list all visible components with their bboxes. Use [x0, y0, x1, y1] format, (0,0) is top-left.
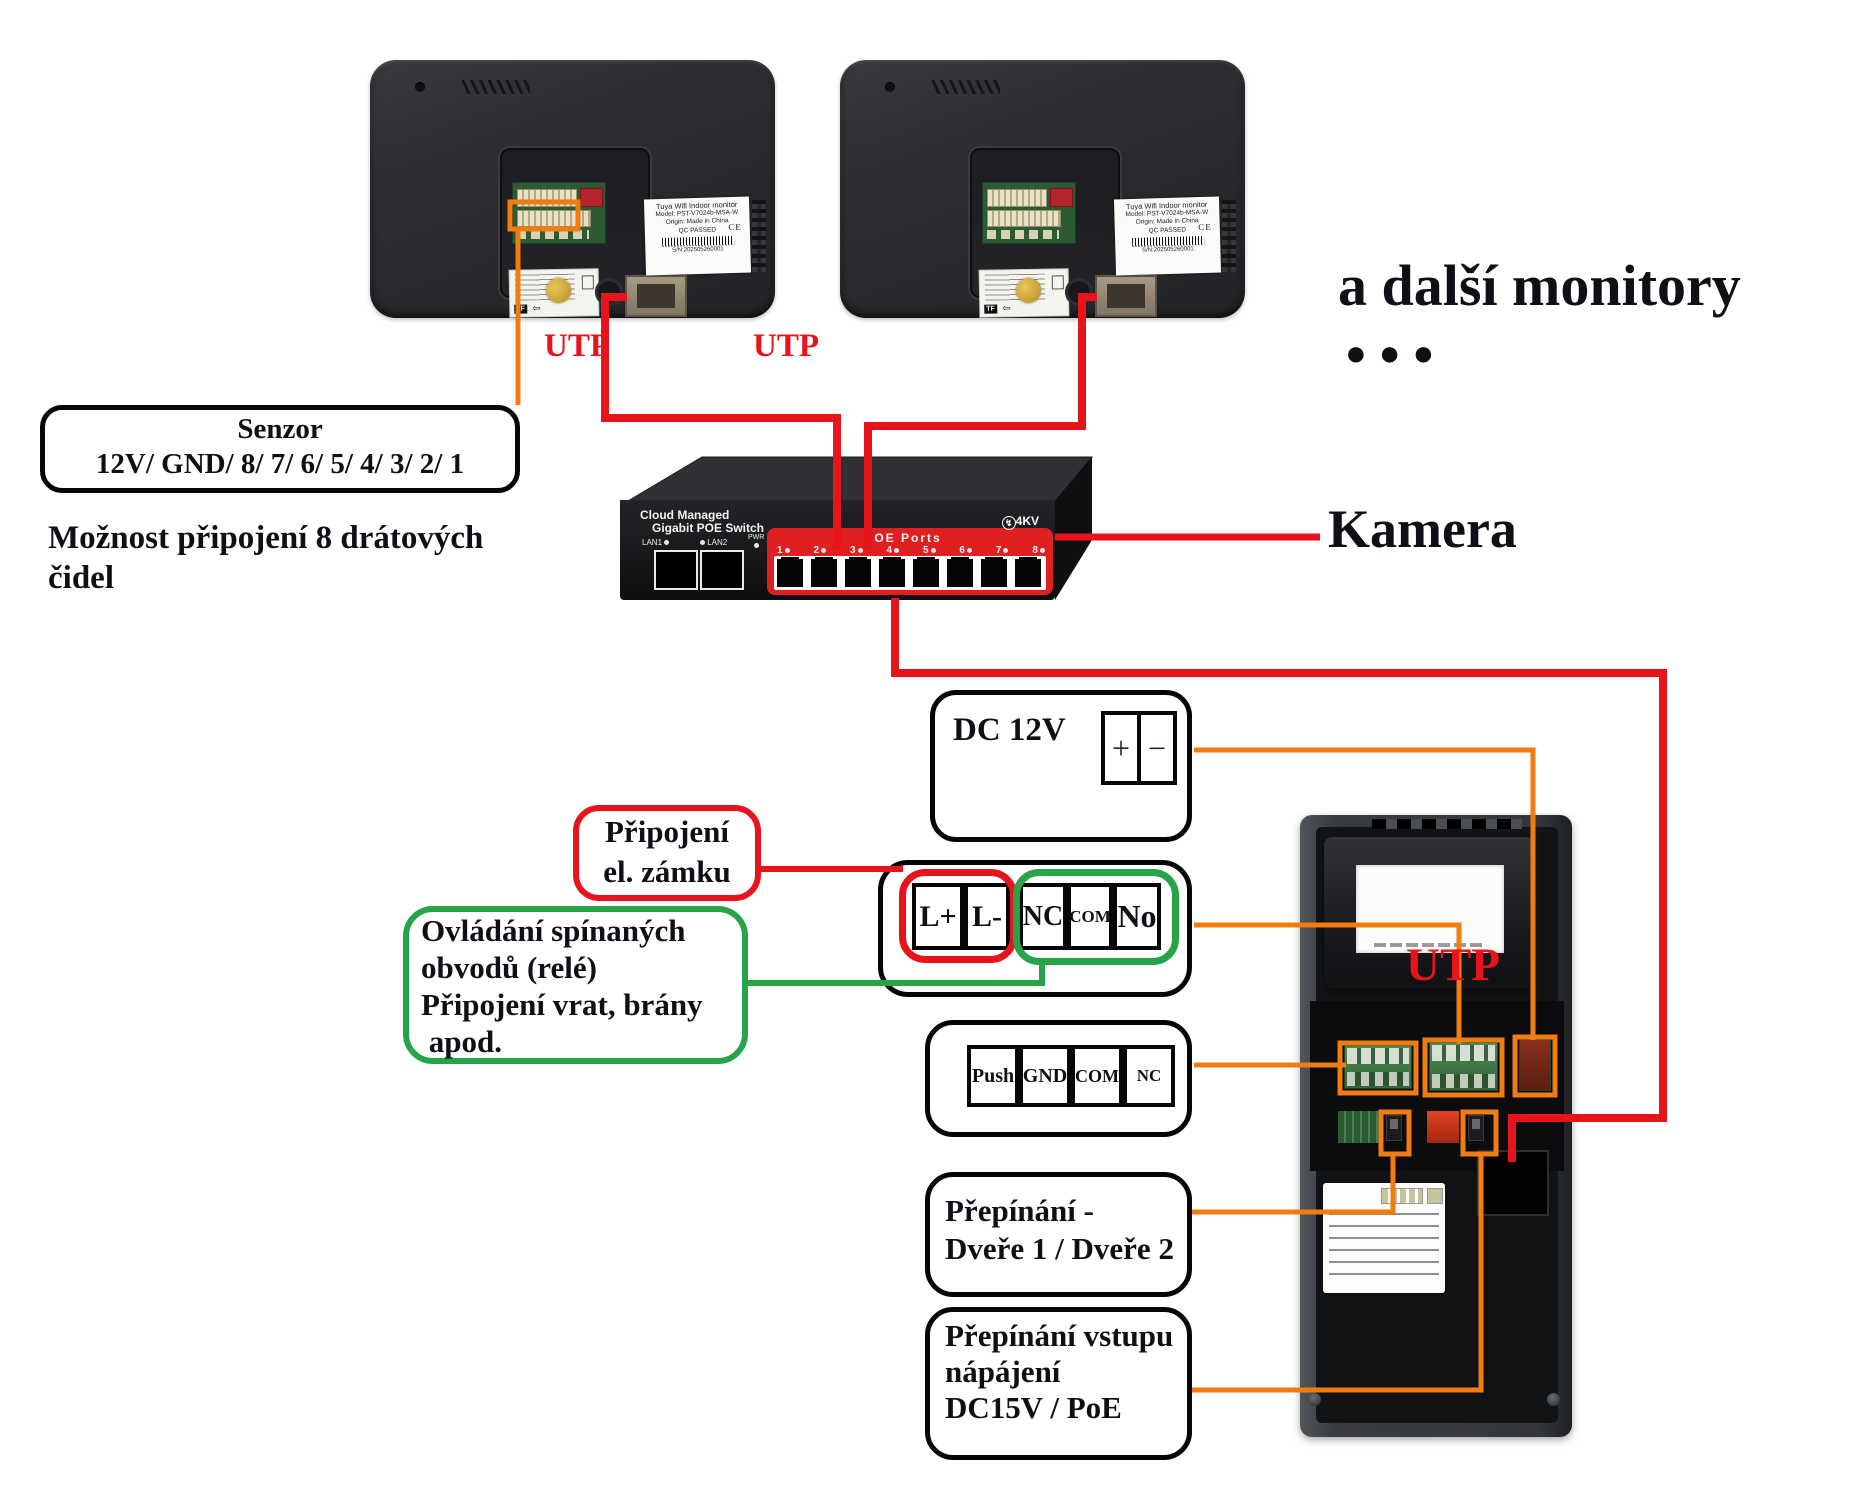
dc-power-connector: [1519, 1039, 1551, 1091]
relay-callout-line1: Ovládání spínaných: [421, 912, 685, 949]
dc12v-terminal-box: + −: [1101, 711, 1177, 785]
vent-holes: [752, 200, 766, 272]
lan1-port: [656, 552, 696, 588]
dc-plus-terminal: +: [1105, 715, 1141, 781]
wire-connector: [517, 189, 577, 207]
small-pcb: [1338, 1111, 1382, 1143]
poe-port-strip: [774, 556, 1046, 590]
label-serial: S/N:202505260001: [1115, 245, 1220, 256]
label-qc: QC PASSEDCE: [1115, 225, 1220, 237]
device-label: Tuya Wifi Indoor monitor Model: PST-V702…: [644, 197, 751, 276]
speaker-icon: [595, 278, 623, 306]
lock-callout-line1: Připojení: [573, 812, 761, 852]
io-terminal-block: [1429, 1042, 1498, 1091]
indoor-monitor-1: TF ⇦ Tuya Wifi Indoor monitor Model: PST…: [370, 60, 775, 318]
indoor-monitor-2: TF ⇦ Tuya Wifi Indoor monitor Model: PST…: [840, 60, 1245, 318]
switch-top-face: [628, 457, 1092, 501]
rj45-port: [777, 559, 803, 587]
dc12v-callout: DC 12V + −: [930, 690, 1192, 842]
arrow-icon: ⇦: [1002, 304, 1011, 314]
lan1-label: LAN1: [642, 538, 669, 547]
speaker-icon: [1065, 278, 1093, 306]
power-select-switch: [1468, 1115, 1484, 1141]
rj45-port: [625, 275, 687, 317]
sensor-connector: [517, 210, 591, 227]
tf-slot-label: TF: [984, 304, 997, 313]
dip-drawing: [1052, 275, 1064, 289]
lan2-led: [700, 540, 705, 545]
screw-icon: [885, 82, 895, 92]
vent-slots: [462, 80, 530, 94]
rj45-port: [1095, 275, 1157, 317]
device-label: Tuya Wifi Indoor monitor Model: PST-V702…: [1114, 197, 1221, 276]
tf-slot-label: TF: [514, 304, 527, 313]
power-switch-line3: DC15V / PoE: [945, 1390, 1122, 1426]
lan2-label: LAN2: [700, 538, 727, 547]
lightning-icon: ↯: [1002, 516, 1016, 530]
relay-terminals-ring: [1013, 869, 1179, 965]
arrow-icon: ⇦: [532, 304, 541, 314]
ce-mark: CE: [728, 223, 742, 232]
screw-icon: [1308, 1393, 1321, 1406]
lan2-port: [702, 552, 742, 588]
utp-label-1: UTP: [544, 328, 610, 365]
door-switch-line1: Přepínání -: [945, 1192, 1094, 1230]
utp-port-opening: [1477, 1150, 1549, 1216]
ce-mark: CE: [1198, 223, 1212, 232]
rj45-port: [913, 559, 939, 587]
terminal-cell-nc2: NC: [1123, 1045, 1175, 1107]
power-switch-line1: Přepínání vstupu: [945, 1318, 1173, 1354]
dip-drawing: [582, 275, 594, 289]
jumper-pins: [987, 230, 1059, 239]
relay-terminal-block: [1344, 1045, 1412, 1089]
label-serial: S/N:202505260001: [645, 245, 750, 256]
switch-side-face: [1055, 457, 1092, 600]
qc-round-sticker: [1016, 278, 1041, 303]
door-station: [1300, 815, 1572, 1437]
port-number: 8: [1032, 545, 1045, 556]
switch-brand-line2: Gigabit POE Switch: [652, 521, 764, 535]
sensor-callout-pins: 12V/ GND/ 8/ 7/ 6/ 5/ 4/ 3/ 2/ 1: [40, 447, 520, 481]
sensor-connector: [987, 210, 1061, 227]
terminal-cell-gnd: GND: [1019, 1045, 1071, 1107]
rj45-port: [947, 559, 973, 587]
door-switch-line2: Dveře 1 / Dveře 2: [945, 1230, 1174, 1268]
rj45-port: [879, 559, 905, 587]
poe-switch: Cloud Managed Gigabit POE Switch LAN1 LA…: [620, 500, 1055, 600]
relay-callout-line4: apod.: [421, 1023, 502, 1060]
rj45-port: [845, 559, 871, 587]
wire-connector: [987, 189, 1047, 207]
rj45-port: [811, 559, 837, 587]
vent-slots: [932, 80, 1000, 94]
port-number: 7: [996, 545, 1009, 556]
more-monitors-text: a další monitory: [1338, 252, 1741, 319]
station-vents: [1372, 819, 1522, 829]
red-connector: [580, 188, 603, 207]
lock-callout-line2: el. zámku: [573, 852, 761, 892]
red-jumper-block: [1427, 1111, 1459, 1143]
sensor-note-line2: čidel: [48, 558, 114, 598]
surge-protection-label: ↯4KV: [1002, 514, 1039, 530]
station-pinout-sticker: [1323, 1183, 1445, 1293]
intercom-wiring-diagram: TF ⇦ Tuya Wifi Indoor monitor Model: PST…: [0, 0, 1858, 1502]
poe-port-numbers: 1 2 3 4 5 6 7 8: [777, 545, 1045, 556]
camera-label: Kamera: [1328, 498, 1517, 560]
sensor-callout-title: Senzor: [40, 412, 520, 446]
relay-callout-line3: Připojení vrat, brány: [421, 986, 703, 1023]
sensor-note-line1: Možnost připojení 8 drátových: [48, 518, 483, 558]
jumper-pins: [517, 230, 589, 239]
door-select-switch: [1386, 1115, 1402, 1141]
terminal-cell-push: Push: [967, 1045, 1019, 1107]
poe-ports-title: POE Ports: [767, 531, 1039, 545]
port-number: 2: [813, 545, 826, 556]
port-number: 6: [959, 545, 972, 556]
rj45-port: [981, 559, 1007, 587]
port-number: 4: [886, 545, 899, 556]
port-number: 5: [923, 545, 936, 556]
utp-label-main: UTP: [1406, 938, 1500, 992]
relay-callout-line2: obvodů (relé): [421, 949, 597, 986]
lan1-led: [664, 540, 669, 545]
utp-label-2: UTP: [753, 328, 819, 365]
poe-ports-panel: ↯4KV POE Ports 1 2 3 4 5 6 7 8: [767, 528, 1053, 595]
port-number: 1: [777, 545, 790, 556]
pwr-led: [754, 543, 759, 548]
terminal-cell-com2: COM: [1071, 1045, 1123, 1107]
dc-minus-terminal: −: [1141, 715, 1173, 781]
dc12v-label: DC 12V: [953, 711, 1066, 749]
power-switch-line2: nápájení: [945, 1354, 1060, 1390]
pwr-label: PWR: [748, 534, 764, 550]
vent-holes: [1222, 200, 1236, 272]
ellipsis-dots: ●●●: [1345, 332, 1446, 374]
lock-terminals-ring: [899, 869, 1017, 963]
red-connector: [1050, 188, 1073, 207]
screw-icon: [1547, 1393, 1560, 1406]
rj45-port: [1015, 559, 1041, 587]
screw-icon: [415, 82, 425, 92]
switch-brand-line1: Cloud Managed: [640, 508, 729, 522]
label-qc: QC PASSEDCE: [645, 225, 750, 237]
qc-round-sticker: [546, 278, 571, 303]
port-number: 3: [850, 545, 863, 556]
